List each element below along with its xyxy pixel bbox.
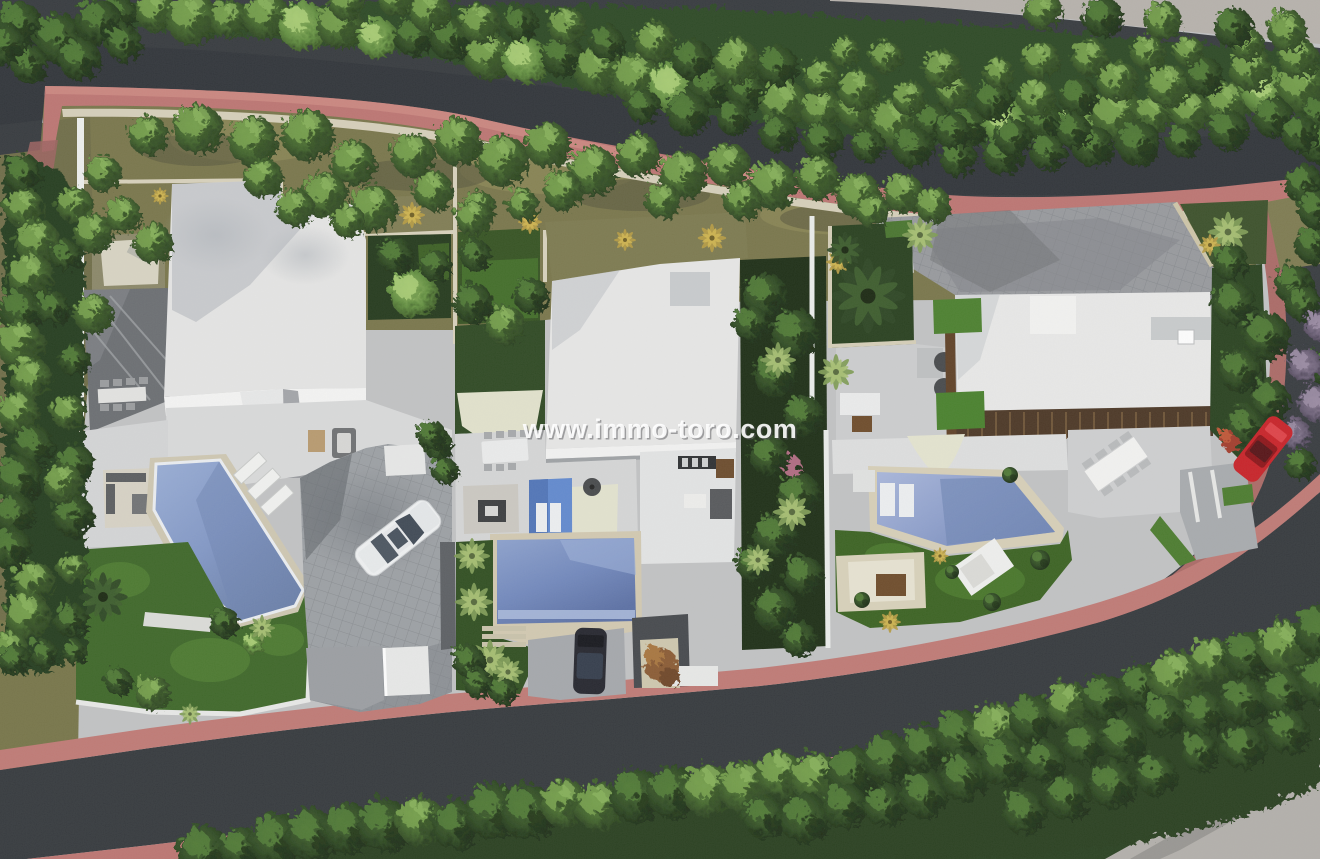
svg-text:www.immo-toro.com: www.immo-toro.com <box>522 414 798 444</box>
